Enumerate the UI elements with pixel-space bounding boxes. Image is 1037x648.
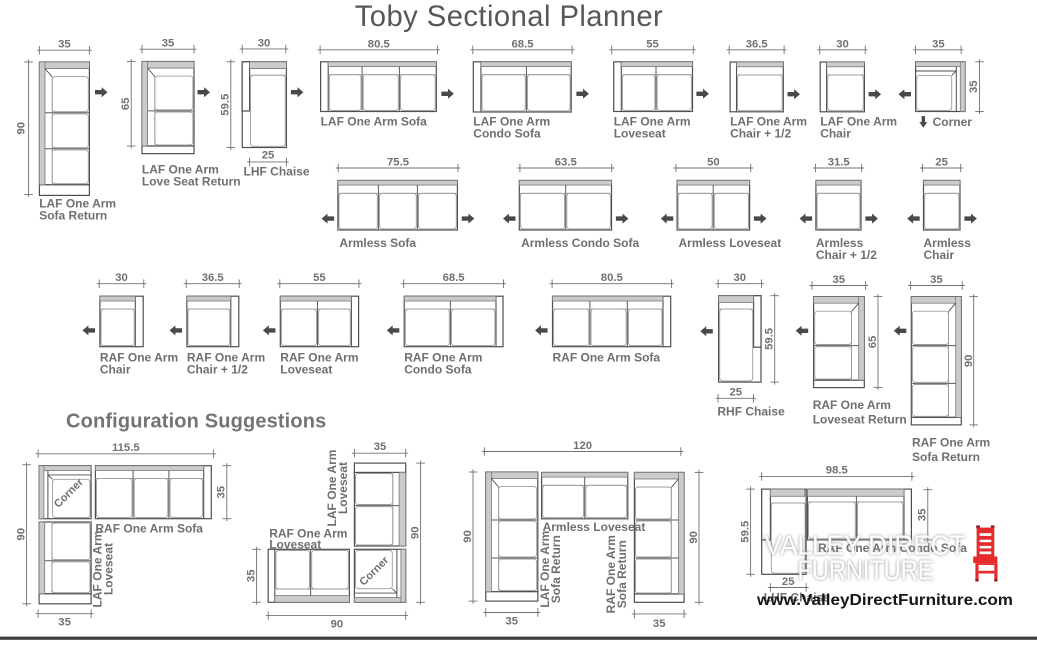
svg-text:31.5: 31.5 [828, 157, 850, 169]
svg-text:Chair + 1/2: Chair + 1/2 [816, 248, 877, 262]
svg-text:Armless Condo Sofa: Armless Condo Sofa [521, 236, 639, 250]
svg-text:90: 90 [462, 530, 474, 543]
svg-text:80.5: 80.5 [368, 38, 390, 50]
svg-text:Chair: Chair [820, 126, 851, 140]
svg-text:36.5: 36.5 [202, 272, 224, 284]
svg-text:Armless Loveseat: Armless Loveseat [543, 520, 646, 534]
svg-text:50: 50 [707, 157, 720, 169]
svg-text:Sofa Return: Sofa Return [549, 535, 563, 603]
svg-text:35: 35 [245, 570, 257, 583]
svg-text:63.5: 63.5 [555, 157, 577, 169]
svg-text:59.5: 59.5 [764, 328, 776, 350]
svg-text:FURNITURE: FURNITURE [798, 555, 934, 586]
svg-text:35: 35 [968, 80, 980, 93]
svg-text:55: 55 [313, 272, 326, 284]
svg-text:LHF Chaise: LHF Chaise [244, 164, 310, 178]
svg-text:RAF One Arm Sofa: RAF One Arm Sofa [95, 522, 203, 536]
svg-text:59.5: 59.5 [739, 521, 751, 543]
svg-text:25: 25 [782, 576, 795, 588]
svg-text:Armless Sofa: Armless Sofa [339, 236, 416, 250]
svg-text:25: 25 [935, 157, 948, 169]
svg-text:Loveseat: Loveseat [269, 538, 321, 552]
svg-text:RAF One Arm: RAF One Arm [912, 435, 990, 449]
svg-text:Chair: Chair [924, 248, 955, 262]
svg-text:36.5: 36.5 [746, 38, 768, 50]
svg-text:65: 65 [867, 336, 879, 349]
svg-text:Corner: Corner [933, 115, 973, 129]
svg-text:Chair + 1/2: Chair + 1/2 [730, 126, 791, 140]
svg-text:Sofa Return: Sofa Return [912, 450, 980, 464]
svg-text:30: 30 [836, 38, 849, 50]
svg-text:Armless Loveseat: Armless Loveseat [679, 236, 782, 250]
svg-text:68.5: 68.5 [512, 38, 534, 50]
svg-text:LAF One Arm Sofa: LAF One Arm Sofa [321, 115, 428, 129]
svg-text:Chair: Chair [100, 362, 131, 376]
svg-text:35: 35 [833, 274, 846, 286]
svg-text:Chair + 1/2: Chair + 1/2 [187, 362, 248, 376]
svg-text:35: 35 [374, 441, 387, 453]
svg-text:68.5: 68.5 [443, 272, 465, 284]
svg-text:Configuration Suggestions: Configuration Suggestions [66, 411, 326, 433]
svg-text:35: 35 [162, 38, 175, 50]
svg-text:30: 30 [115, 272, 128, 284]
svg-text:Loveseat: Loveseat [101, 543, 115, 595]
svg-text:30: 30 [258, 37, 271, 49]
svg-text:Toby Sectional Planner: Toby Sectional Planner [355, 1, 663, 33]
svg-text:35: 35 [653, 618, 666, 630]
svg-text:35: 35 [917, 509, 929, 522]
svg-text:35: 35 [506, 616, 519, 628]
svg-text:98.5: 98.5 [826, 464, 848, 476]
svg-text:90: 90 [15, 528, 27, 541]
svg-text:80.5: 80.5 [601, 272, 623, 284]
svg-text:90: 90 [16, 122, 28, 135]
svg-text:30: 30 [734, 272, 747, 284]
svg-text:Loveseat Return: Loveseat Return [813, 413, 907, 427]
svg-text:Sofa Return: Sofa Return [39, 209, 107, 223]
svg-text:25: 25 [730, 386, 743, 398]
svg-text:Love Seat Return: Love Seat Return [142, 175, 241, 189]
svg-text:RAF One Arm Sofa: RAF One Arm Sofa [553, 350, 661, 364]
svg-text:90: 90 [409, 526, 421, 539]
svg-text:90: 90 [688, 531, 700, 544]
svg-text:35: 35 [58, 617, 71, 629]
svg-text:25: 25 [262, 150, 275, 162]
svg-text:Loveseat: Loveseat [614, 126, 666, 140]
svg-text:120: 120 [573, 440, 592, 452]
svg-text:115.5: 115.5 [112, 442, 140, 454]
svg-text:55: 55 [646, 38, 659, 50]
svg-text:65: 65 [120, 98, 132, 111]
svg-text:75.5: 75.5 [387, 157, 409, 169]
svg-text:35: 35 [932, 38, 945, 50]
svg-text:Loveseat: Loveseat [280, 362, 332, 376]
svg-text:35: 35 [930, 274, 943, 286]
svg-text:Condo Sofa: Condo Sofa [404, 362, 472, 376]
svg-text:90: 90 [331, 619, 344, 631]
svg-text:Sofa Return: Sofa Return [615, 540, 629, 608]
svg-text:Loveseat: Loveseat [336, 462, 350, 514]
svg-text:90: 90 [963, 355, 975, 368]
svg-text:RAF One Arm: RAF One Arm [813, 398, 891, 412]
svg-text:59.5: 59.5 [219, 94, 231, 116]
svg-text:35: 35 [58, 39, 71, 51]
svg-text:35: 35 [216, 486, 228, 499]
svg-text:www.ValleyDirectFurniture.com: www.ValleyDirectFurniture.com [756, 592, 1013, 609]
svg-text:RHF Chaise: RHF Chaise [717, 404, 785, 418]
svg-text:Condo Sofa: Condo Sofa [473, 126, 541, 140]
